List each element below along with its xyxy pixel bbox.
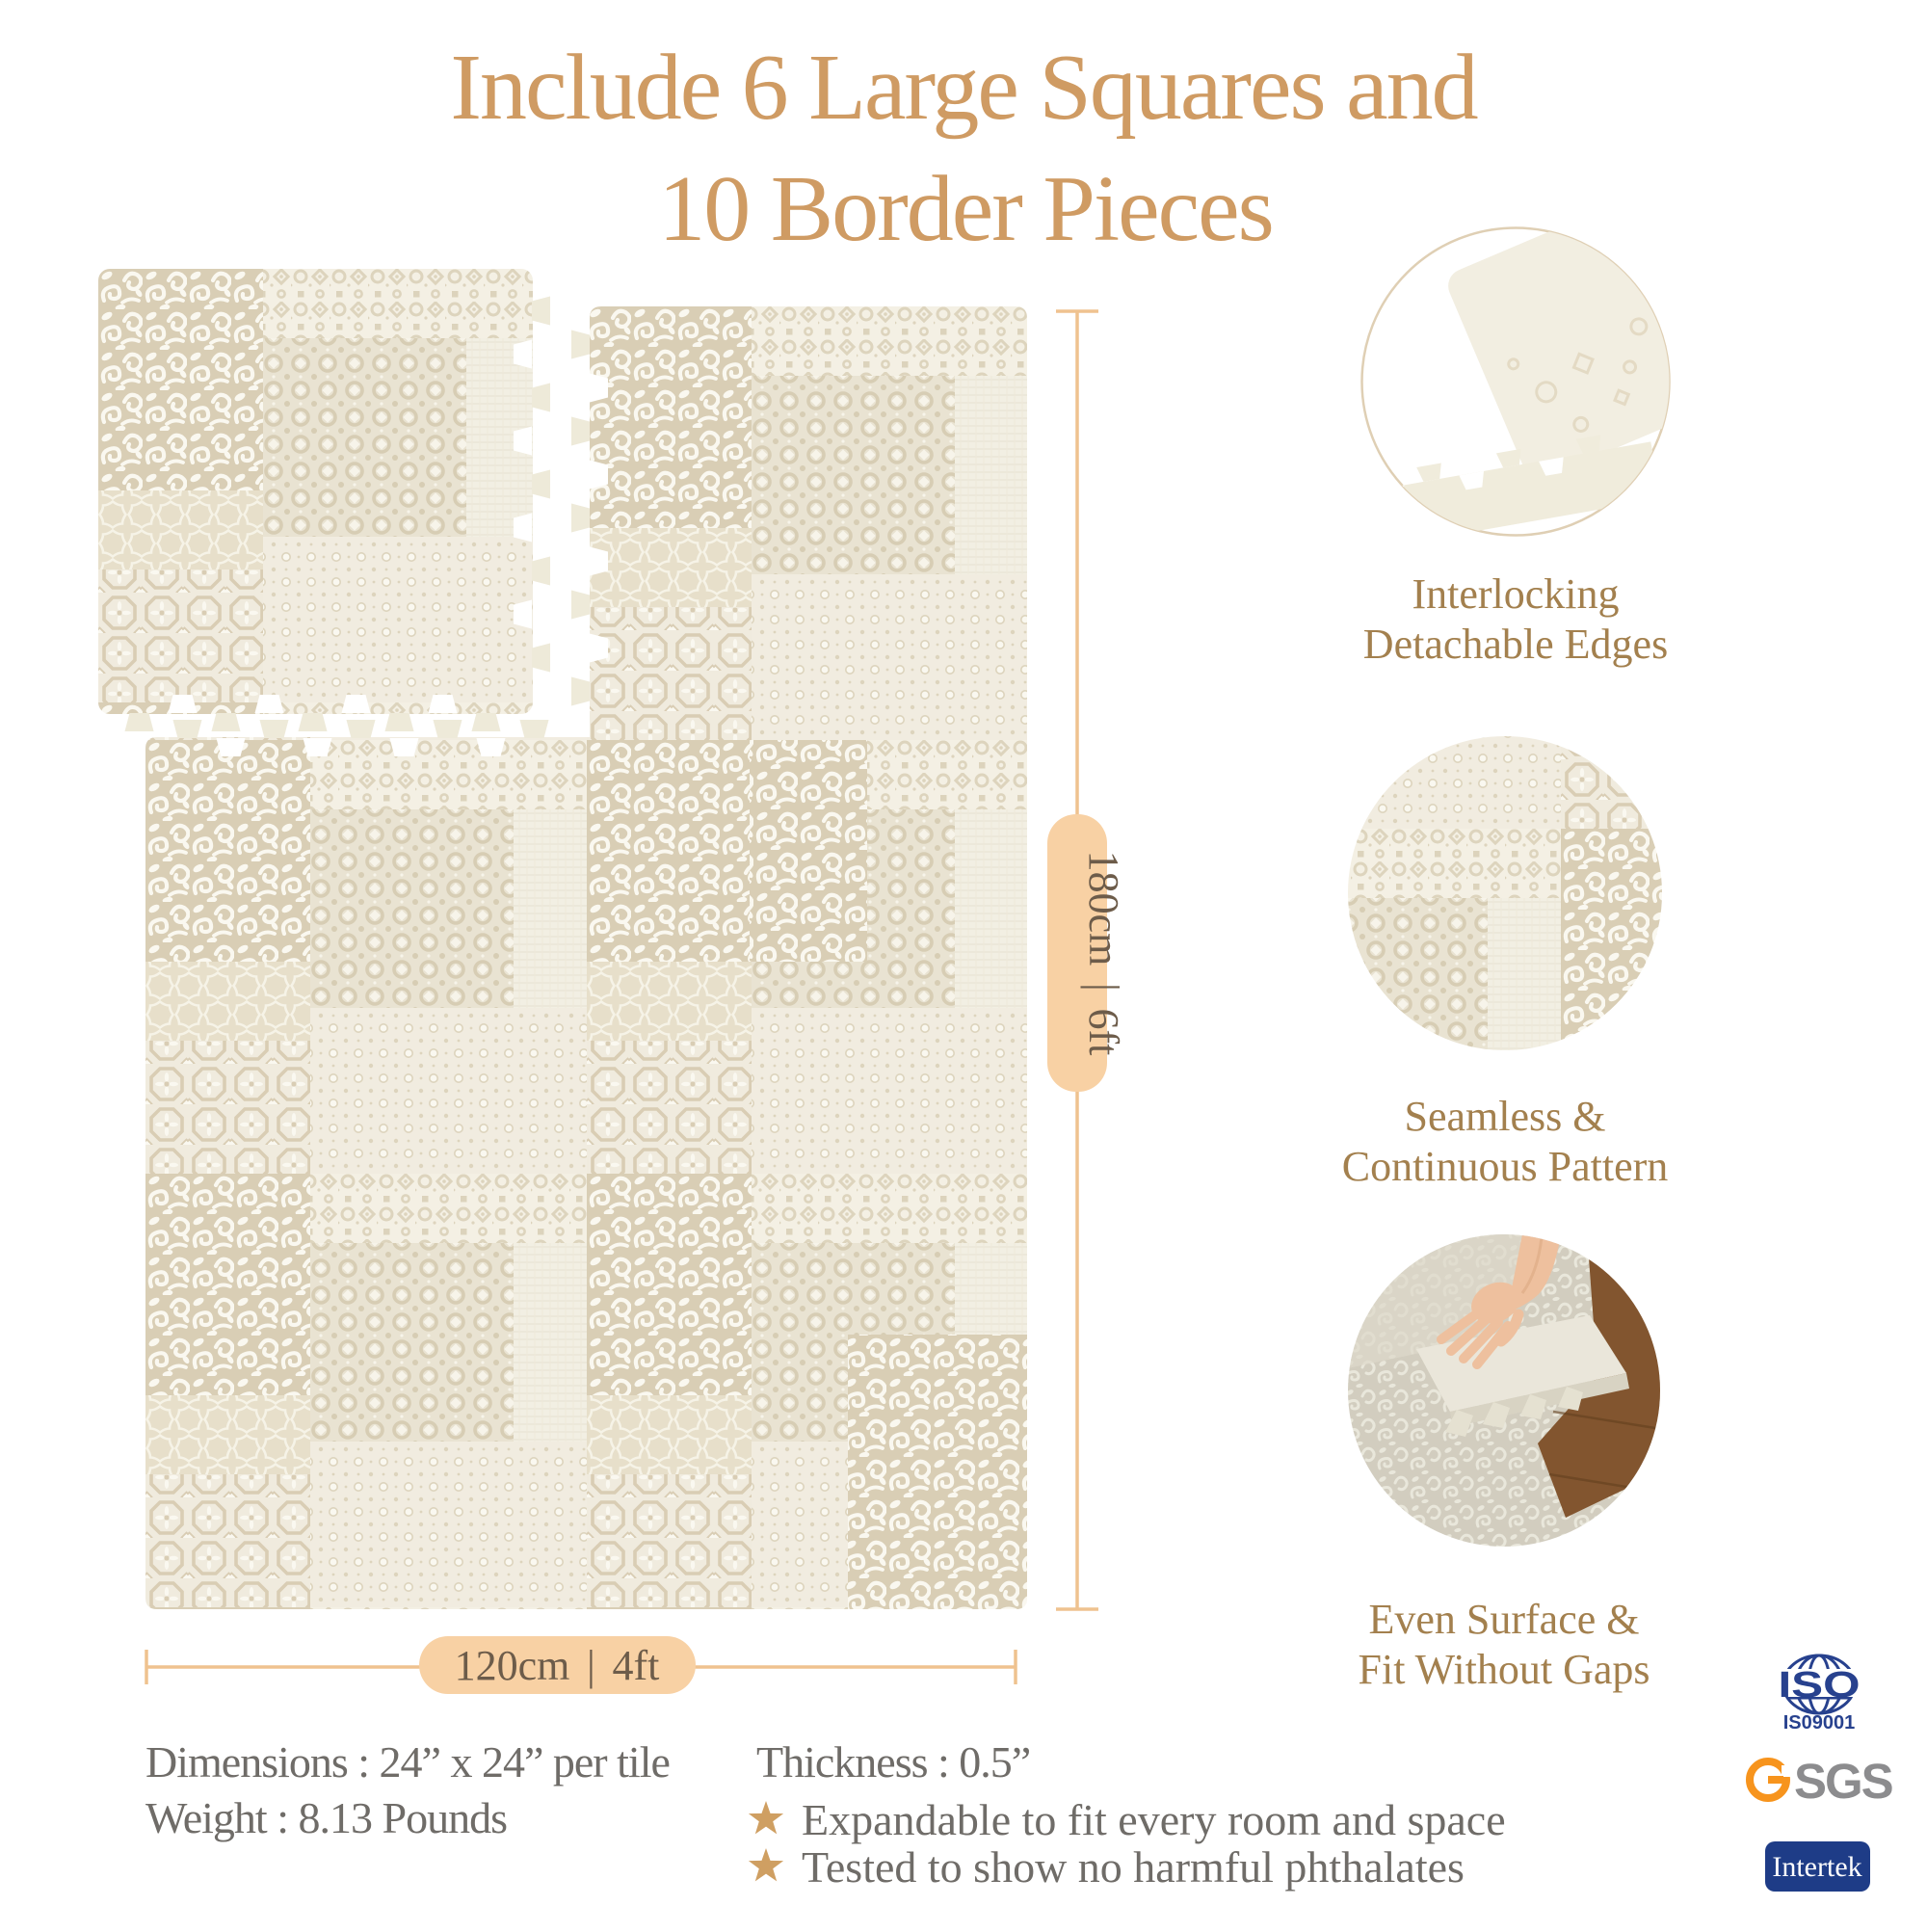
svg-text:Dimensions : 24” x 24” per til: Dimensions : 24” x 24” per tile — [145, 1737, 670, 1786]
svg-text:180cm | 6ft: 180cm | 6ft — [1080, 851, 1127, 1056]
svg-text:IS09001: IS09001 — [1783, 1712, 1856, 1734]
svg-text:10 Border Pieces: 10 Border Pieces — [658, 157, 1273, 261]
svg-text:SGS: SGS — [1794, 1754, 1893, 1809]
svg-text:Thickness : 0.5”: Thickness : 0.5” — [756, 1737, 1030, 1786]
svg-text:Interlocking: Interlocking — [1412, 570, 1619, 618]
svg-text:Expandable to fit every room a: Expandable to fit every room and space — [802, 1795, 1506, 1844]
svg-text:Detachable Edges: Detachable Edges — [1363, 621, 1668, 668]
svg-text:120cm | 4ft: 120cm | 4ft — [455, 1642, 660, 1689]
svg-text:Include 6 Large Squares and: Include 6 Large Squares and — [450, 36, 1477, 140]
svg-text:Seamless &: Seamless & — [1405, 1093, 1606, 1140]
svg-text:Intertek: Intertek — [1772, 1851, 1861, 1883]
svg-text:Weight : 8.13 Pounds: Weight : 8.13 Pounds — [145, 1793, 507, 1842]
svg-text:Continuous Pattern: Continuous Pattern — [1342, 1143, 1669, 1190]
svg-text:Fit Without Gaps: Fit Without Gaps — [1359, 1646, 1650, 1693]
svg-text:Tested to show no harmful phth: Tested to show no harmful phthalates — [802, 1842, 1465, 1892]
svg-text:Even Surface &: Even Surface & — [1369, 1596, 1640, 1643]
svg-text:ISO: ISO — [1778, 1664, 1860, 1705]
